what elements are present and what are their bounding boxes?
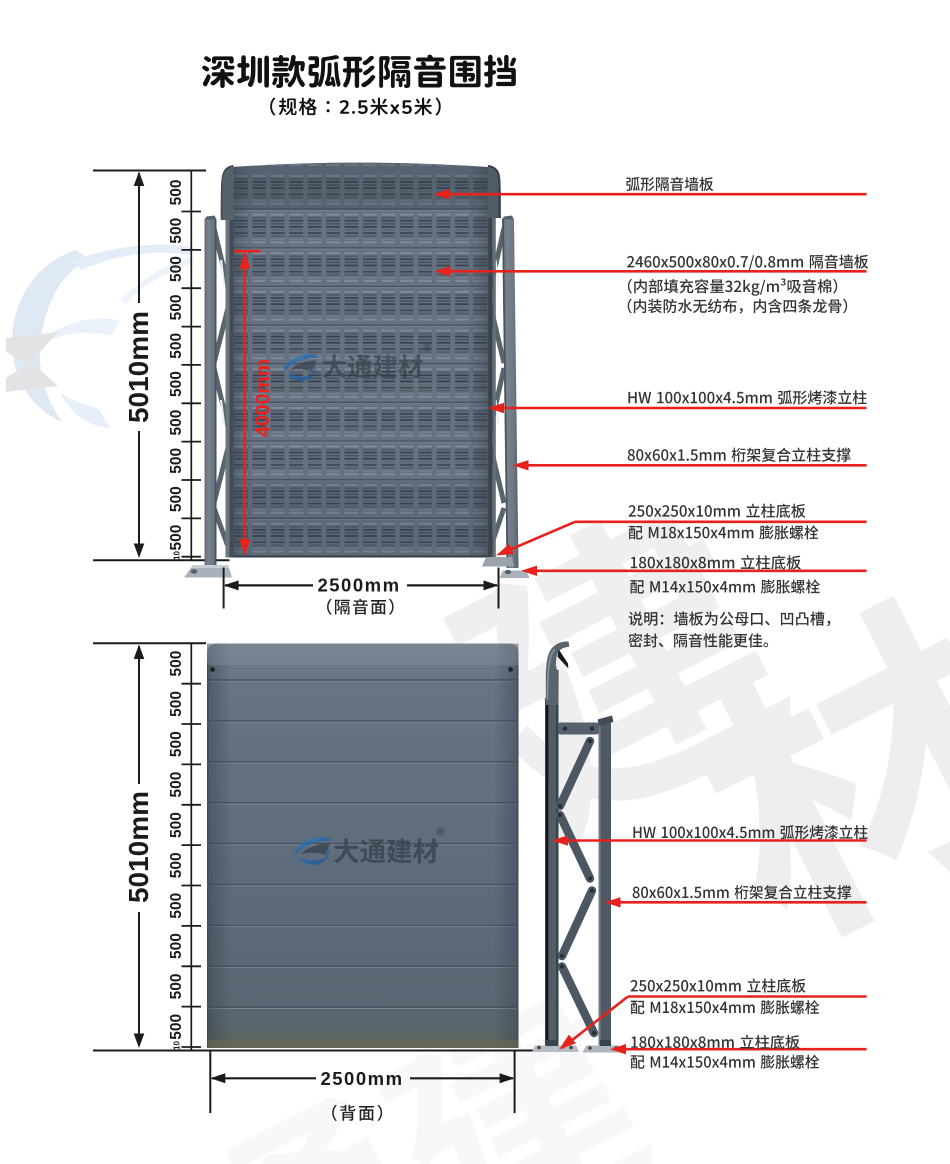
svg-text:10: 10 [173,551,182,560]
svg-text:500: 500 [168,448,185,474]
svg-text:500: 500 [168,933,185,959]
svg-text:500: 500 [168,218,185,244]
svg-text:500: 500 [168,731,185,757]
svg-text:500: 500 [168,179,185,205]
svg-text:2500mm: 2500mm [317,575,400,596]
svg-text:4000mm: 4000mm [252,359,274,437]
svg-text:500: 500 [168,525,185,551]
svg-text:5010mm: 5010mm [123,311,154,423]
svg-text:500: 500 [168,691,185,717]
svg-text:500: 500 [168,812,185,838]
svg-text:500: 500 [168,973,185,999]
svg-text:10: 10 [173,1041,182,1050]
svg-text:500: 500 [168,256,185,282]
svg-text:500: 500 [168,333,185,359]
svg-text:500: 500 [168,294,185,320]
svg-text:500: 500 [168,371,185,397]
svg-text:500: 500 [168,410,185,436]
svg-text:500: 500 [168,651,185,677]
svg-text:500: 500 [168,486,185,512]
svg-text:500: 500 [168,772,185,798]
svg-text:5010mm: 5010mm [123,791,154,903]
svg-text:500: 500 [168,1014,185,1040]
svg-text:2500mm: 2500mm [320,1068,403,1089]
svg-text:500: 500 [168,893,185,919]
svg-text:500: 500 [168,852,185,878]
